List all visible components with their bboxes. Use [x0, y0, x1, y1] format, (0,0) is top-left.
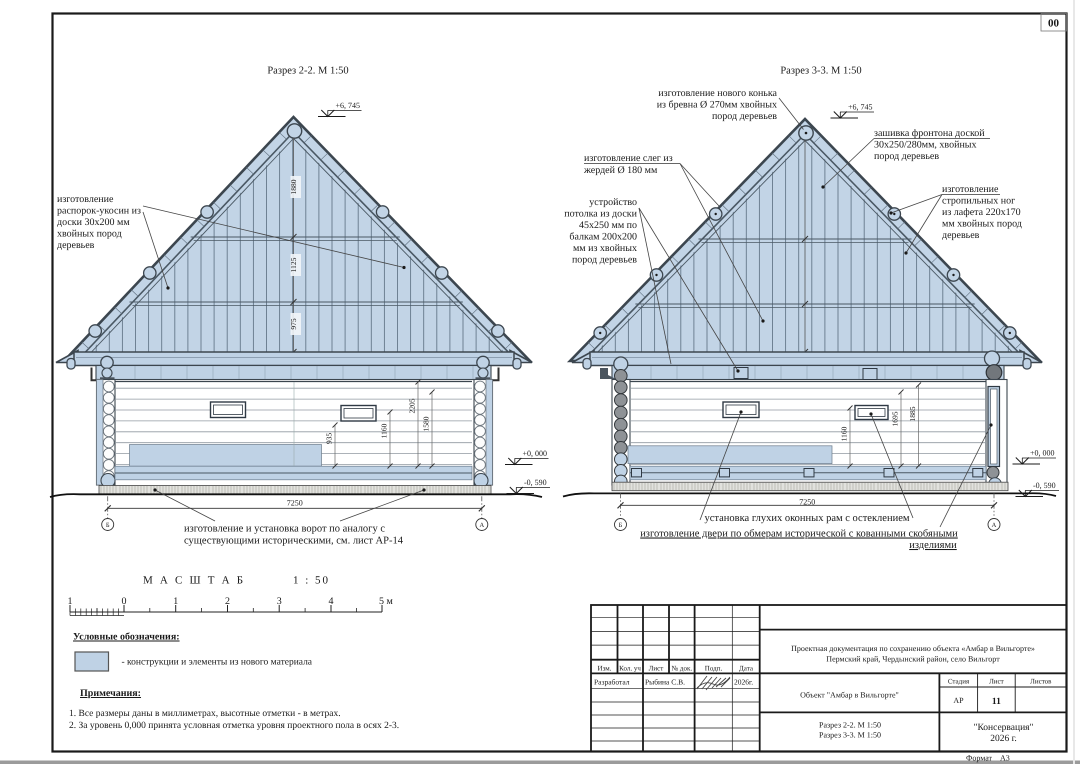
svg-text:жердей Ø 180 мм: жердей Ø 180 мм [583, 165, 658, 176]
svg-text:00: 00 [1048, 18, 1060, 30]
svg-text:3: 3 [277, 596, 282, 607]
svg-text:1580: 1580 [422, 416, 431, 431]
svg-text:потолка из доски: потолка из доски [564, 209, 637, 220]
svg-text:+6, 745: +6, 745 [336, 101, 361, 110]
svg-text:Б: Б [619, 522, 623, 529]
svg-text:1695: 1695 [891, 411, 900, 426]
svg-text:устройство: устройство [589, 197, 637, 208]
svg-text:+6, 745: +6, 745 [848, 103, 873, 112]
svg-text:существующими историческими, с: существующими историческими, см. лист АР… [184, 536, 404, 547]
svg-text:2026 г.: 2026 г. [990, 734, 1017, 744]
svg-text:пород деревьев: пород деревьев [572, 255, 637, 266]
svg-text:Формат: Формат [966, 754, 993, 763]
svg-text:"Консервация": "Консервация" [974, 723, 1034, 733]
svg-text:из лафета 220х170: из лафета 220х170 [942, 207, 1021, 218]
svg-text:М А С Ш Т А Б: М А С Ш Т А Б [143, 575, 245, 587]
svg-text:пород деревьев: пород деревьев [712, 111, 777, 122]
svg-text:1880: 1880 [289, 179, 298, 194]
svg-text:1160: 1160 [840, 426, 849, 441]
svg-text:+0, 000: +0, 000 [1030, 449, 1055, 458]
svg-text:хвойных пород: хвойных пород [57, 229, 122, 240]
svg-text:Лист: Лист [649, 665, 664, 673]
svg-text:А: А [992, 522, 997, 529]
svg-text:11: 11 [992, 697, 1001, 707]
svg-text:Разрез 2-2. М 1:50: Разрез 2-2. М 1:50 [267, 66, 348, 77]
svg-text:Кол. уч: Кол. уч [619, 665, 641, 673]
svg-text:45х250 мм по: 45х250 мм по [579, 220, 637, 231]
svg-text:изготовление: изготовление [942, 184, 999, 195]
svg-text:мм из хвойных: мм из хвойных [573, 243, 637, 254]
svg-text:2026г.: 2026г. [734, 678, 753, 687]
svg-text:зашивка фронтона доской: зашивка фронтона доской [874, 128, 985, 139]
svg-text:Разработал: Разработал [594, 678, 630, 687]
svg-text:А: А [479, 522, 484, 529]
svg-text:доски 30х200 мм: доски 30х200 мм [57, 217, 130, 228]
svg-text:№ док.: № док. [671, 665, 692, 673]
svg-text:2205: 2205 [408, 398, 417, 413]
svg-text:Проектная документация по сохр: Проектная документация по сохранению объ… [791, 644, 1035, 653]
svg-text:изготовление и установка ворот: изготовление и установка ворот по аналог… [184, 524, 385, 535]
svg-text:7250: 7250 [287, 499, 303, 508]
svg-text:1125: 1125 [289, 257, 298, 272]
svg-text:+0, 000: +0, 000 [523, 449, 548, 458]
svg-text:7250: 7250 [799, 498, 815, 507]
svg-text:Условные обозначения:: Условные обозначения: [73, 632, 180, 643]
svg-text:0: 0 [122, 596, 127, 607]
svg-text:Подп.: Подп. [705, 665, 723, 673]
svg-text:2. За уровень 0,000 принята ус: 2. За уровень 0,000 принята условная отм… [69, 721, 399, 731]
svg-text:Стадия: Стадия [948, 678, 970, 686]
svg-text:975: 975 [289, 318, 298, 330]
svg-text:деревьев: деревьев [57, 240, 95, 251]
svg-text:АР: АР [953, 696, 964, 705]
svg-text:установка глухих оконных рам с: установка глухих оконных рам с остеклени… [704, 513, 909, 524]
svg-text:мм хвойных пород: мм хвойных пород [942, 219, 1022, 230]
svg-text:4: 4 [329, 596, 334, 607]
svg-text:-0, 590: -0, 590 [524, 478, 547, 487]
svg-text:стропильных ног: стропильных ног [942, 196, 1015, 207]
svg-text:Б: Б [106, 522, 110, 529]
svg-text:пород деревьев: пород деревьев [874, 151, 939, 162]
svg-text:Лист: Лист [989, 678, 1004, 686]
svg-text:Изм.: Изм. [598, 665, 612, 673]
svg-text:балкам 200х200: балкам 200х200 [569, 232, 637, 243]
svg-text:2: 2 [225, 596, 230, 607]
svg-text:Примечания:: Примечания: [80, 688, 141, 699]
svg-text:1. Все размеры даны в миллимет: 1. Все размеры даны в миллиметрах, высот… [69, 709, 341, 719]
svg-text:- конструкции и элементы из но: - конструкции и элементы из нового матер… [122, 658, 313, 668]
svg-text:Объект "Амбар в Вильгорте": Объект "Амбар в Вильгорте" [800, 691, 899, 700]
svg-text:-0, 590: -0, 590 [1033, 481, 1056, 490]
svg-text:1: 1 [173, 596, 178, 607]
svg-text:Разрез 3-3. М 1:50: Разрез 3-3. М 1:50 [819, 731, 881, 740]
svg-text:Рыбина С.В.: Рыбина С.В. [645, 678, 685, 687]
svg-text:Дата: Дата [739, 665, 754, 673]
svg-text:Разрез 3-3. М 1:50: Разрез 3-3. М 1:50 [780, 66, 861, 77]
svg-text:изготовление: изготовление [57, 194, 114, 205]
svg-text:Листов: Листов [1030, 678, 1052, 686]
svg-text:изготовление нового конька: изготовление нового конька [658, 88, 777, 99]
svg-text:935: 935 [325, 433, 334, 445]
svg-text:5 м: 5 м [379, 596, 394, 607]
svg-text:1160: 1160 [380, 423, 389, 438]
svg-text:1: 1 [68, 596, 73, 607]
svg-text:1 : 50: 1 : 50 [293, 575, 330, 587]
svg-text:А3: А3 [1000, 754, 1010, 763]
svg-text:Пермский край, Чердынский райо: Пермский край, Чердынский район, село Ви… [826, 655, 1000, 664]
svg-text:из бревна Ø 270мм хвойных: из бревна Ø 270мм хвойных [657, 100, 777, 111]
svg-text:деревьев: деревьев [942, 230, 980, 241]
svg-text:распорок-укосин из: распорок-укосин из [57, 206, 141, 217]
svg-text:1885: 1885 [908, 406, 917, 421]
svg-text:30х250/280мм, хвойных: 30х250/280мм, хвойных [874, 140, 977, 151]
svg-text:изготовление слег из: изготовление слег из [584, 153, 673, 164]
svg-text:изготовление двери по обмерам: изготовление двери по обмерам историческ… [640, 529, 958, 540]
svg-text:изделиями: изделиями [909, 540, 957, 551]
svg-text:Разрез 2-2. М 1:50: Разрез 2-2. М 1:50 [819, 721, 881, 730]
